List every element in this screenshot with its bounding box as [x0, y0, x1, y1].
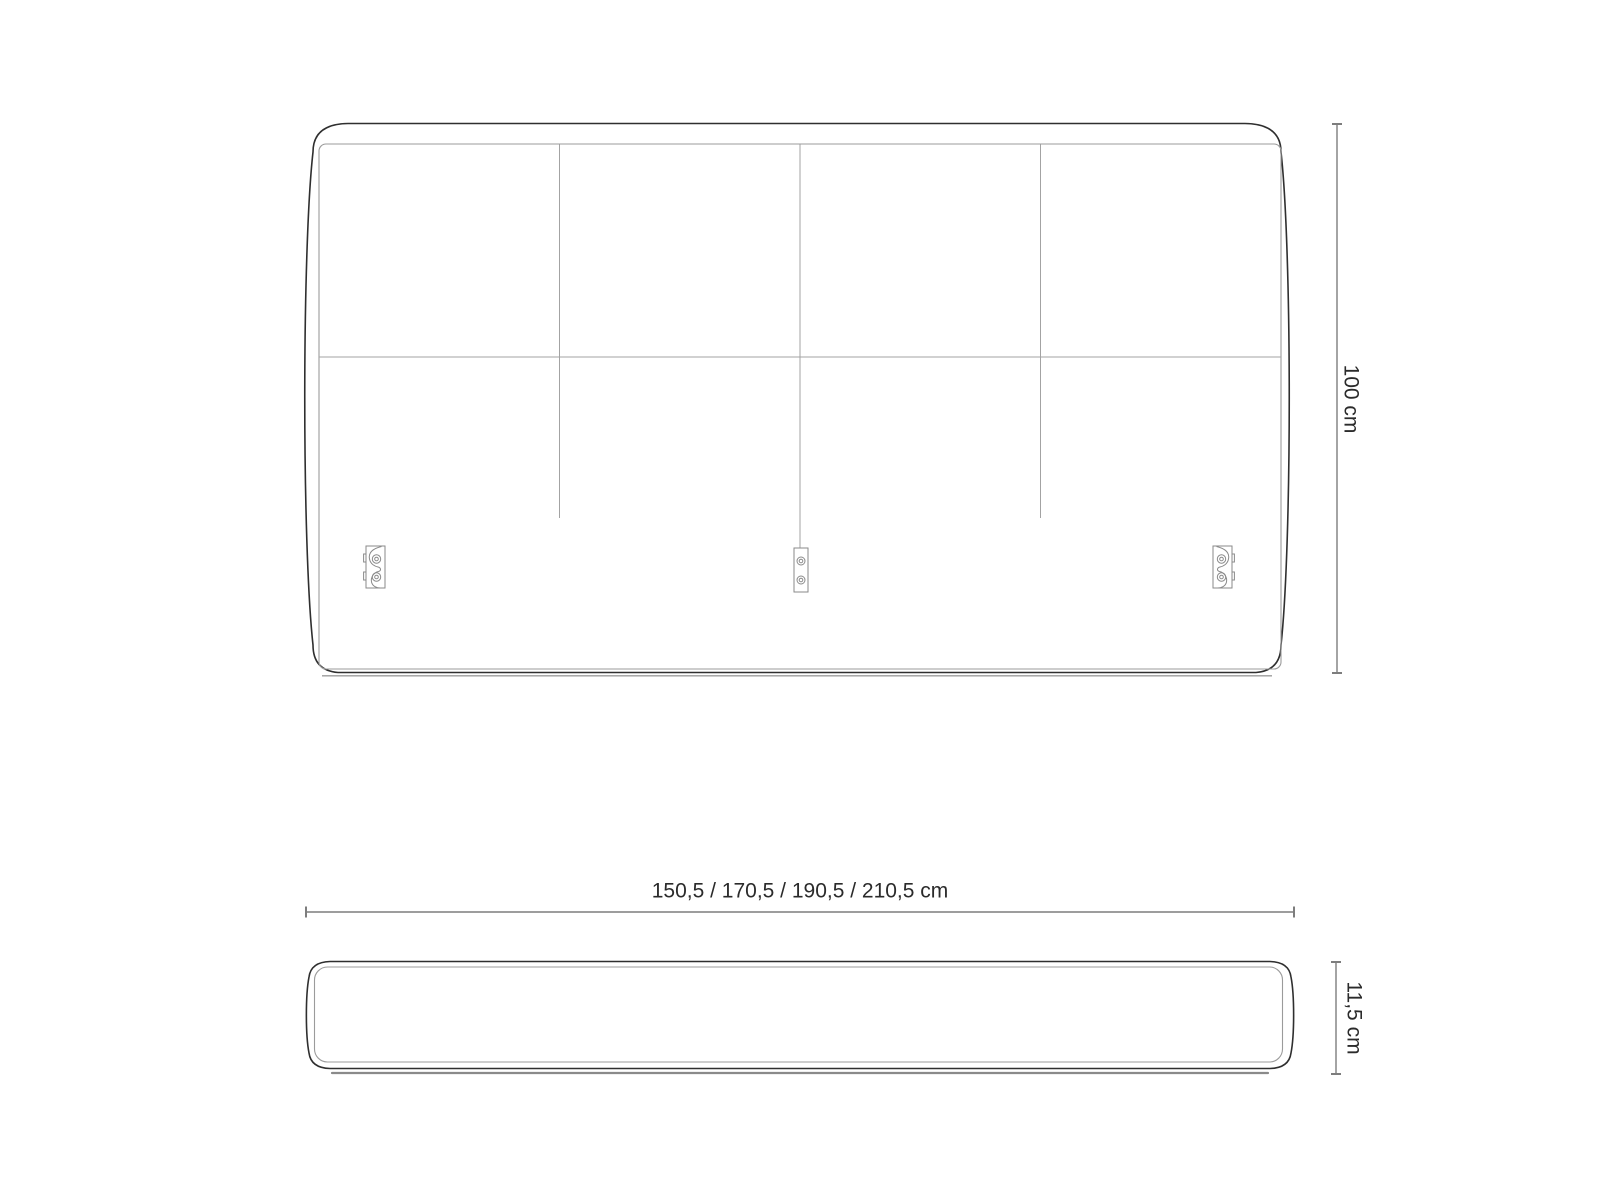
height-dimension-label: 100 cm — [1341, 365, 1362, 434]
front-view — [305, 124, 1290, 676]
bracket-plate — [1213, 546, 1232, 588]
mounting-bracket-right — [1213, 546, 1234, 588]
technical-drawing-canvas: 100 cm 150,5 / 170,5 / 190,5 / 210,5 cm … — [0, 0, 1600, 1200]
mounting-bracket-center — [794, 548, 808, 592]
bracket-tab — [1232, 572, 1234, 580]
width-dimension-label: 150,5 / 170,5 / 190,5 / 210,5 cm — [652, 881, 949, 902]
bracket-tab — [1232, 554, 1234, 562]
mounting-bracket-left — [364, 546, 385, 588]
width-dimension-line — [306, 907, 1294, 918]
bracket-plate — [794, 548, 808, 592]
depth-dimension-line — [1331, 962, 1341, 1074]
depth-dimension-label: 11,5 cm — [1344, 981, 1365, 1054]
bracket-tab — [364, 554, 366, 562]
top-view-outer-silhouette — [306, 962, 1293, 1069]
bracket-plate — [366, 546, 385, 588]
bracket-tab — [364, 572, 366, 580]
top-view — [306, 962, 1293, 1074]
top-view-panel-outline — [315, 967, 1283, 1062]
